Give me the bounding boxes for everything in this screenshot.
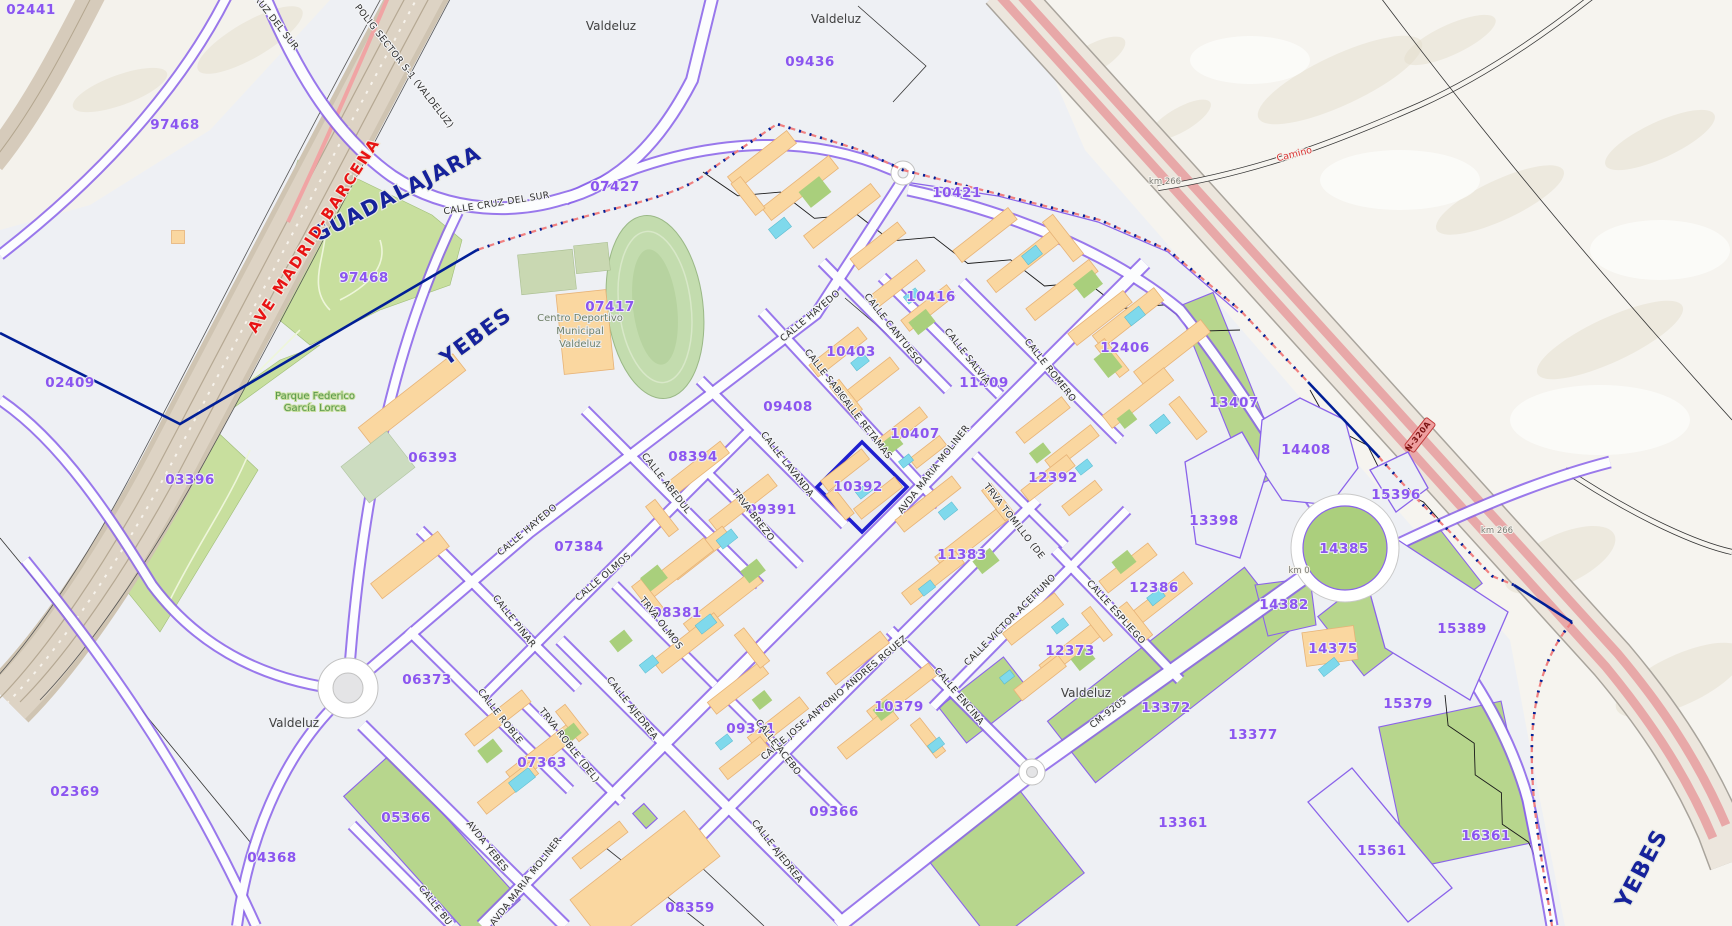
parcel-label-03396: 03396 bbox=[165, 472, 214, 488]
parcel-label-13377: 13377 bbox=[1228, 727, 1277, 743]
parcel-label-04368: 04368 bbox=[247, 850, 296, 866]
parcel-label-13407: 13407 bbox=[1209, 395, 1258, 411]
parcel-label-02409: 02409 bbox=[45, 375, 94, 391]
parcel-label-13361: 13361 bbox=[1158, 815, 1207, 831]
town-label-valdeluz: Valdeluz bbox=[269, 716, 319, 730]
map-svg[interactable]: 0244197468974680240903396063930742709436… bbox=[0, 0, 1732, 926]
park-label: Parque Federico bbox=[275, 391, 355, 402]
parcel-label-97468: 97468 bbox=[150, 117, 199, 133]
sports-center-label: Municipal bbox=[556, 326, 604, 337]
parcel-label-07384: 07384 bbox=[554, 539, 603, 555]
parcel-label-06393: 06393 bbox=[408, 450, 457, 466]
parcel-label-15379: 15379 bbox=[1383, 696, 1432, 712]
parcel-label-13372: 13372 bbox=[1141, 700, 1190, 716]
cadastral-map-canvas[interactable]: 0244197468974680240903396063930742709436… bbox=[0, 0, 1732, 926]
park-label: García Lorca bbox=[284, 402, 346, 414]
town-label-valdeluz: Valdeluz bbox=[1061, 686, 1111, 700]
parcel-label-15389: 15389 bbox=[1437, 621, 1486, 637]
parcel-label-13398: 13398 bbox=[1189, 513, 1238, 529]
parcel-label-14385: 14385 bbox=[1319, 541, 1368, 557]
parcel-label-10421: 10421 bbox=[932, 185, 981, 201]
km-marker-label: km 266 bbox=[1149, 177, 1181, 187]
parcel-label-12406: 12406 bbox=[1100, 340, 1149, 356]
parcel-label-14408: 14408 bbox=[1281, 442, 1330, 458]
parcel-label-14382: 14382 bbox=[1259, 597, 1308, 613]
parcel-label-08359: 08359 bbox=[665, 900, 714, 916]
parcel-label-10403: 10403 bbox=[826, 344, 875, 360]
sports-center-label: Valdeluz bbox=[559, 339, 601, 350]
parcel-label-14375: 14375 bbox=[1308, 641, 1357, 657]
parcel-label-10407: 10407 bbox=[890, 426, 939, 442]
parcel-label-07363: 07363 bbox=[517, 755, 566, 771]
parcel-label-10379: 10379 bbox=[874, 699, 923, 715]
parcel-label-02369: 02369 bbox=[50, 784, 99, 800]
km-marker-label: km 266 bbox=[1481, 526, 1513, 536]
parcel-label-12392: 12392 bbox=[1028, 470, 1077, 486]
sports-center-label: Centro Deportivo bbox=[537, 313, 623, 324]
parcel-label-07427: 07427 bbox=[590, 179, 639, 195]
parcel-label-05366: 05366 bbox=[381, 810, 430, 826]
parcel-label-02441: 02441 bbox=[6, 2, 55, 18]
parcel-label-09436: 09436 bbox=[785, 54, 834, 70]
parcel-label-15361: 15361 bbox=[1357, 843, 1406, 859]
parcel-label-97468: 97468 bbox=[339, 270, 388, 286]
parcel-label-12373: 12373 bbox=[1045, 643, 1094, 659]
parcel-label-12386: 12386 bbox=[1129, 580, 1178, 596]
parcel-label-06373: 06373 bbox=[402, 672, 451, 688]
parcel-label-08394: 08394 bbox=[668, 449, 717, 465]
parcel-label-10416: 10416 bbox=[906, 289, 955, 305]
town-label-valdeluz: Valdeluz bbox=[811, 12, 861, 26]
parcel-label-16361: 16361 bbox=[1461, 828, 1510, 844]
parcel-label-15396: 15396 bbox=[1371, 487, 1420, 503]
parcel-label-09408: 09408 bbox=[763, 399, 812, 415]
km-marker-label: km 0 bbox=[1288, 566, 1309, 576]
parcel-label-10392: 10392 bbox=[833, 479, 882, 495]
parcel-label-11383: 11383 bbox=[937, 547, 986, 563]
parcel-label-09366: 09366 bbox=[809, 804, 858, 820]
town-label-valdeluz: Valdeluz bbox=[586, 19, 636, 33]
